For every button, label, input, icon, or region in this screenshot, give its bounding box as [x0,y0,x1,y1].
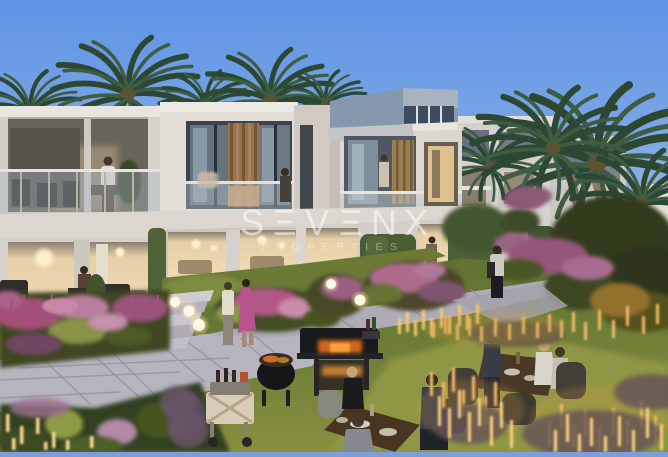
svg-text:Ξ: Ξ [339,202,362,243]
svg-text:PROPERTIES: PROPERTIES [262,241,405,253]
svg-text:Ξ: Ξ [273,202,296,243]
svg-text:X: X [404,202,428,243]
svg-text:N: N [371,202,397,243]
svg-text:V: V [305,202,329,243]
svg-text:S: S [240,202,264,243]
